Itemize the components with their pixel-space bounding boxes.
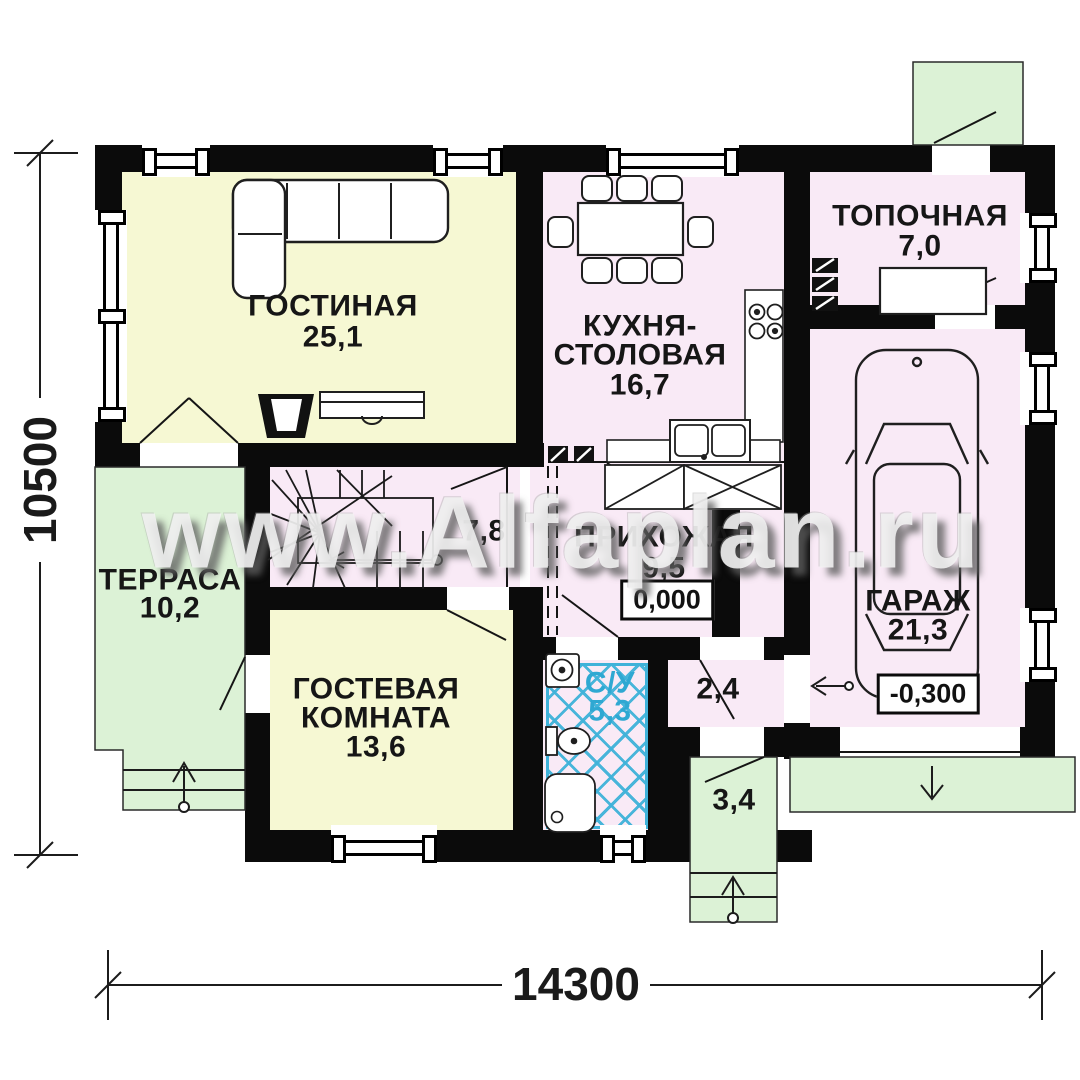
kitchen-sink xyxy=(670,420,750,462)
shower xyxy=(545,774,595,832)
dimension-height: 10500 xyxy=(13,416,67,544)
label-porch-area: 3,4 xyxy=(712,786,755,815)
dining-table xyxy=(578,203,683,255)
label-kitchen-area: 16,7 xyxy=(610,371,670,400)
label-guest-2: КОМНАТА xyxy=(301,704,451,733)
label-boiler-area: 7,0 xyxy=(898,232,941,261)
label-bathroom-area: 5,3 xyxy=(588,697,631,726)
label-garage-area: 21,3 xyxy=(888,616,948,645)
garage-entry-arrow xyxy=(812,677,853,695)
boiler-unit xyxy=(880,268,986,314)
label-living: ГОСТИНАЯ xyxy=(248,292,418,321)
label-guest-area: 13,6 xyxy=(346,733,406,762)
label-terrace-area: 10,2 xyxy=(140,594,200,623)
label-living-area: 25,1 xyxy=(303,323,363,352)
watermark: www.Alfaplan.ru xyxy=(142,475,982,592)
label-kitchen-2: СТОЛОВАЯ xyxy=(554,341,727,370)
sofa xyxy=(233,180,448,298)
tv-stand xyxy=(320,392,424,424)
label-storage-area: 2,4 xyxy=(696,675,739,704)
dimension-width: 14300 xyxy=(512,957,640,1011)
washing-machine xyxy=(546,654,579,687)
boiler-entry-porch xyxy=(913,62,1023,145)
label-boiler: ТОПОЧНАЯ xyxy=(832,202,1008,231)
label-bathroom: С/У xyxy=(585,669,635,698)
label-guest-1: ГОСТЕВАЯ xyxy=(293,675,460,704)
floor-plan: ГОСТИНАЯ 25,1 КУХНЯ- СТОЛОВАЯ 16,7 ТОПОЧ… xyxy=(0,0,1080,1080)
label-kitchen-1: КУХНЯ- xyxy=(583,312,697,341)
fireplace xyxy=(258,394,314,438)
elevation-garage: -0,300 xyxy=(877,674,980,715)
toilet xyxy=(546,727,590,755)
